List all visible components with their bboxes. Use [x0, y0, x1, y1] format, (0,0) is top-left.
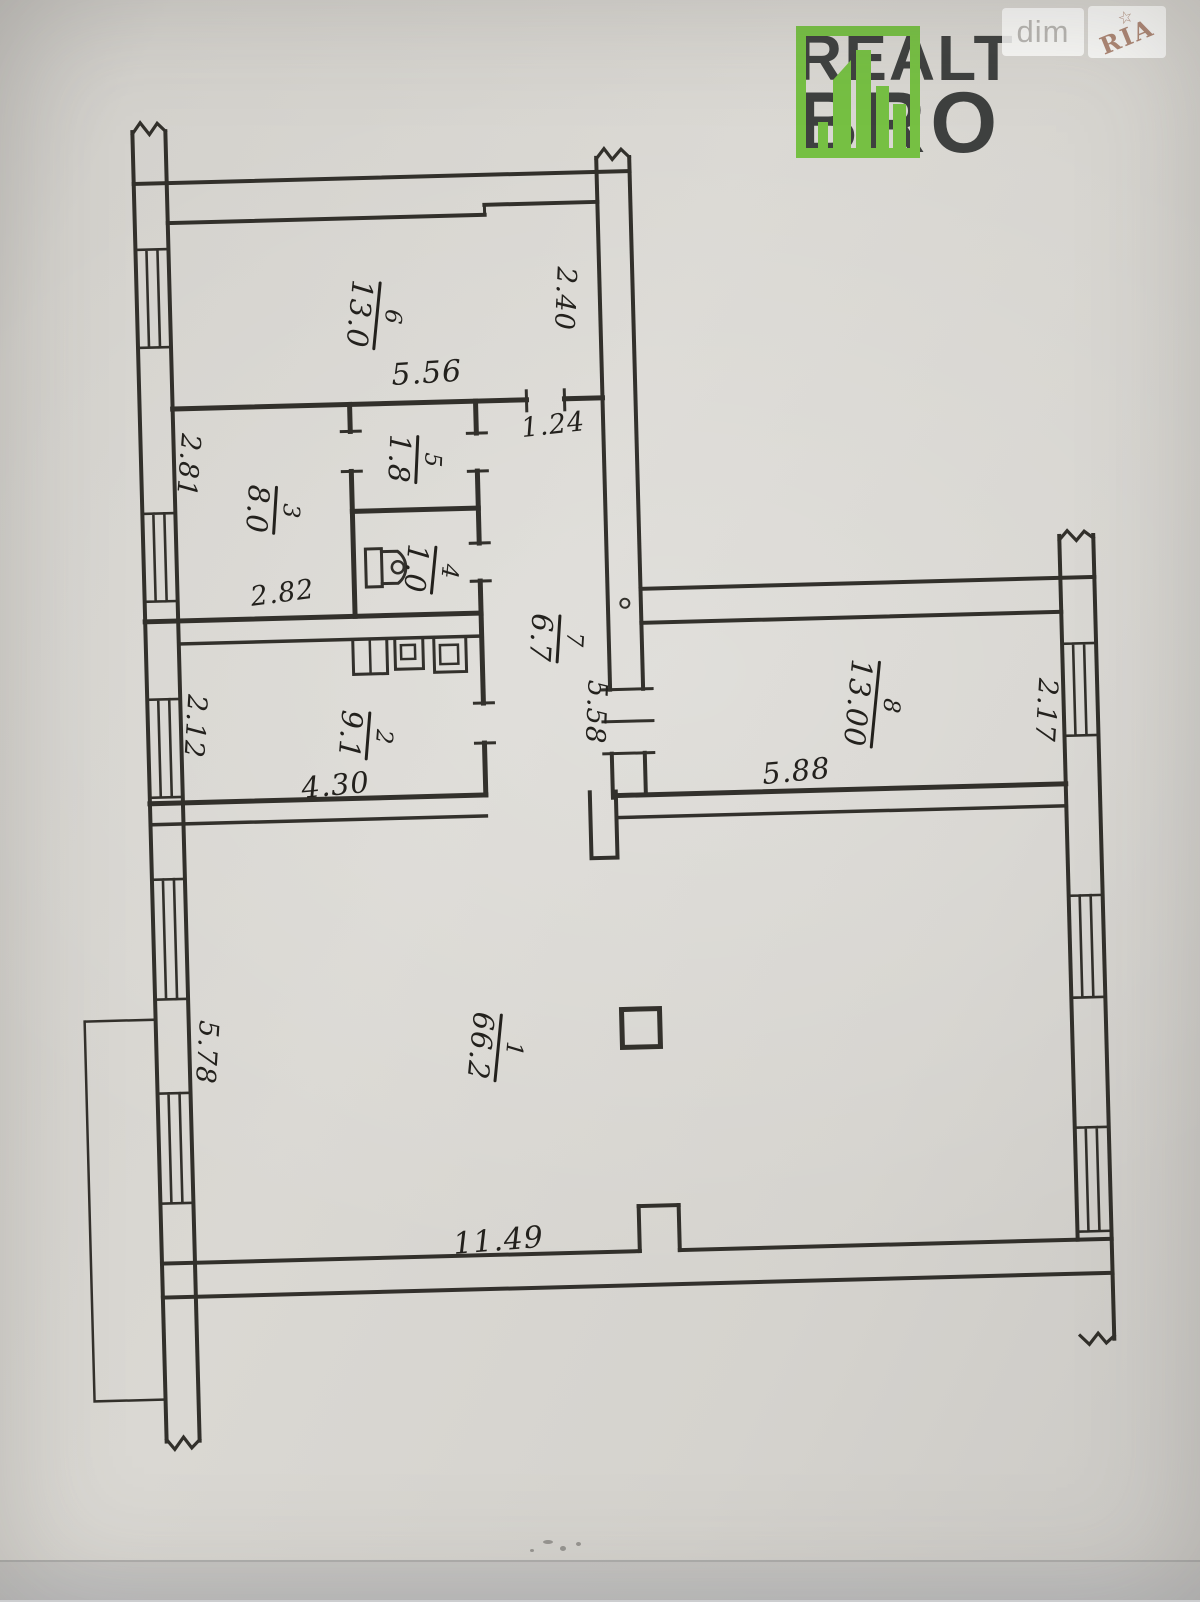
dimension-5-58: 5.58: [579, 679, 613, 744]
room-number: 2: [369, 725, 396, 749]
room-number: 7: [559, 628, 585, 651]
ink-speck: [576, 1542, 581, 1546]
room-label-3: 38.0: [242, 484, 309, 537]
room-label-4: 41.0: [399, 543, 468, 598]
room-area: 1.8: [384, 434, 417, 484]
room-number: 5: [418, 449, 444, 472]
room-label-7: 76.7: [525, 613, 592, 666]
kitchen-fixtures: [353, 637, 467, 674]
floor-plan-svg: [0, 0, 1200, 1615]
outer-walls: [132, 107, 1116, 1441]
dimension-2-12: 2.12: [178, 694, 213, 760]
floor-plan: 166.2 29.1 38.0 41.0 51.8 613.0 76.7 813…: [0, 0, 1200, 1615]
paper-bottom-edge: [0, 1560, 1200, 1602]
wall-break-marks: [132, 98, 1116, 1449]
room-area: 9.1: [334, 709, 369, 760]
dimension-2-81: 2.81: [170, 432, 206, 498]
column-marker: [621, 1009, 660, 1048]
room-number: 1: [499, 1037, 526, 1061]
room-label-6: 613.0: [342, 278, 413, 352]
room-number: 3: [276, 500, 302, 523]
room-area: 6.7: [525, 613, 559, 664]
dimension-4-30: 4.30: [300, 765, 372, 805]
dimension-2-40: 2.40: [548, 266, 582, 331]
window-openings: [135, 225, 1111, 1256]
dim-watermark-label: dim: [1017, 14, 1070, 50]
room-area: 13.0: [342, 278, 379, 349]
room-area: 1.0: [399, 543, 435, 595]
room-number: 4: [434, 560, 461, 584]
realtbro-logo: REALT BRO: [796, 26, 1015, 162]
dimension-2-17: 2.17: [1028, 677, 1063, 743]
room-label-2: 29.1: [334, 709, 402, 763]
ink-speck: [543, 1540, 553, 1544]
balcony-outline: [85, 1020, 166, 1402]
dimension-11-49: 11.49: [452, 1220, 545, 1262]
photographed-floor-plan: 166.2 29.1 38.0 41.0 51.8 613.0 76.7 813…: [0, 0, 1200, 1600]
room-label-5: 51.8: [384, 434, 451, 486]
room-label-1: 166.2: [463, 1011, 534, 1085]
ink-speck: [530, 1549, 534, 1552]
dimension-5-78: 5.78: [189, 1019, 224, 1085]
room-number: 8: [876, 694, 903, 718]
dimension-5-56: 5.56: [390, 354, 463, 393]
dimension-5-88: 5.88: [761, 751, 833, 791]
ink-speck: [560, 1546, 566, 1551]
room-area: 8.0: [242, 484, 276, 535]
ria-watermark-stamp: ☆ RIA: [1088, 6, 1166, 58]
handle-mark: [620, 599, 629, 608]
room-label-8: 813.00: [839, 658, 912, 752]
dim-watermark: dim: [1002, 8, 1084, 56]
room-number: 6: [377, 305, 404, 329]
realtbro-logo-mark buildings-icon: [796, 26, 920, 158]
room-area: 66.2: [463, 1011, 500, 1082]
